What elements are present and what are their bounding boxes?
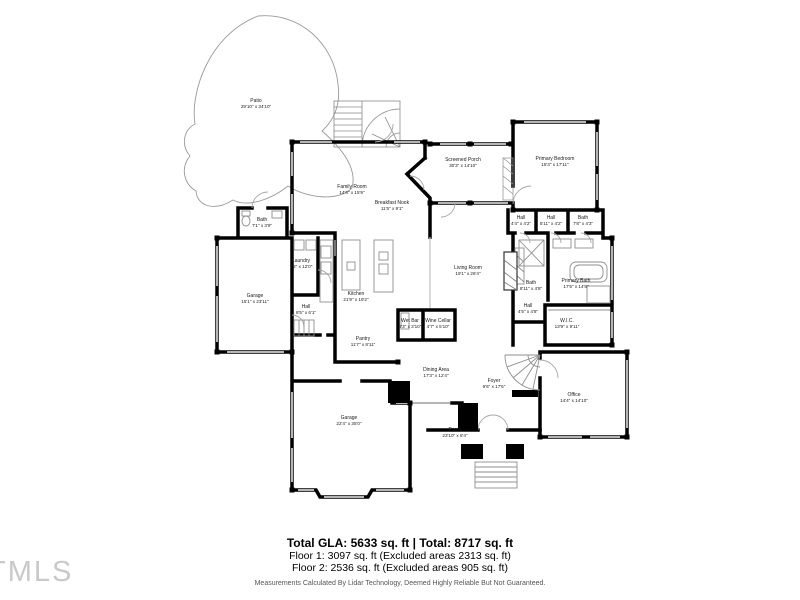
room-label-hall-d: Hall 4'5" x 4'8" [518, 303, 538, 315]
walls [217, 122, 627, 497]
dryer-icon [306, 240, 316, 250]
room-dims: 19'1" x 26'4" [454, 271, 482, 277]
room-label-hall-a: Hall 4'4" x 4'2" [511, 215, 531, 227]
room-dims: 17'3" x 12'4" [423, 373, 449, 379]
room-dims: 4'4" x 4'2" [511, 221, 531, 227]
sink-icon [272, 211, 282, 218]
room-dims: 23'10" x 8'4" [442, 433, 467, 439]
room-label-bath-a: Bath 7'8" x 4'3" [573, 215, 593, 227]
room-label-living-room: Living Room 19'1" x 26'4" [454, 265, 482, 277]
room-dims: 29'10" x 34'10" [241, 104, 271, 110]
room-dims: 9'6" x 17'6" [483, 384, 506, 390]
disclaimer-line: Measurements Calculated By Lidar Technol… [0, 580, 800, 587]
room-dims: 15'3" x 17'11" [536, 162, 575, 168]
room-label-office: Office 14'4" x 14'10" [560, 392, 588, 404]
toilet-icon [242, 216, 250, 226]
porch-steps [475, 462, 517, 488]
room-label-bath-c: Bath 8'11" x 4'8" [520, 280, 542, 292]
room-dims: 8'5" x 6'1" [296, 310, 316, 316]
room-label-wic: W.I.C. 13'9" x 9'11" [555, 318, 580, 330]
room-label-screened-porch: Screened Porch 30'3" x 14'10" [445, 157, 481, 169]
tmls-watermark: TMLS [0, 556, 73, 589]
staircase-top [334, 101, 400, 147]
footer-summary: Total GLA: 5633 sq. ft | Total: 8717 sq.… [0, 536, 800, 587]
room-dims: 8'11" x 4'8" [520, 286, 542, 292]
floor1-line: Floor 1: 3097 sq. ft (Excluded areas 231… [0, 551, 800, 563]
kitchen-island-2 [374, 240, 393, 292]
room-label-breakfast-nook: Breakfast Nook 11'5" x 9'1" [375, 200, 409, 212]
kitchen-island-1 [342, 240, 360, 290]
room-dims: 30'3" x 14'10" [445, 163, 481, 169]
room-dims: 14'4" x 14'10" [560, 398, 588, 404]
room-label-primary-bedroom: Primary Bedroom 15'3" x 17'11" [536, 156, 575, 168]
room-dims: 11'5" x 9'1" [375, 206, 409, 212]
room-label-hall-b: Hall 5'11" x 4'2" [540, 215, 562, 227]
room-label-garage-1: Garage 15'1" x 23'11" [241, 293, 268, 305]
room-label-wet-bar: Wet Bar 8'3" x 3'10" [399, 318, 422, 330]
floor-plan-page: Patio 29'10" x 34'10" Family Room 14'6" … [0, 0, 800, 600]
room-label-primary-bath: Primary Bath 17'5" x 14'8" [562, 278, 591, 290]
room-dims: 8'3" x 3'10" [399, 324, 422, 330]
room-label-patio: Patio 29'10" x 34'10" [241, 98, 271, 110]
room-dims: 22'4" x 35'0" [336, 421, 361, 427]
room-label-bath-b: Bath 7'1" x 3'9" [252, 217, 272, 229]
room-dims: 17'5" x 14'8" [562, 284, 591, 290]
room-label-garage-2: Garage 22'4" x 35'0" [336, 415, 361, 427]
fixtures [242, 211, 610, 488]
floor2-line: Floor 2: 2536 sq. ft (Excluded areas 905… [0, 563, 800, 575]
floor-plan-drawing [0, 0, 800, 600]
room-dims: 7'1" x 3'9" [252, 223, 272, 229]
room-label-foyer: Foyer 9'6" x 17'6" [483, 378, 506, 390]
washer-icon [294, 240, 304, 250]
room-dims: 21'9" x 19'2" [343, 297, 368, 303]
room-label-pantry: Pantry 11'7" x 8'11" [351, 336, 376, 348]
room-dims: 7'2" x 12'0" [290, 264, 313, 270]
room-dims: 13'9" x 9'11" [555, 324, 580, 330]
room-label-laundry: Laundry 7'2" x 12'0" [290, 258, 313, 270]
room-label-porch: Porch 23'10" x 8'4" [442, 427, 467, 439]
room-dims: 14'6" x 15'9" [337, 190, 366, 196]
room-label-family-room: Family Room 14'6" x 15'9" [337, 184, 366, 196]
room-dims: 7'8" x 4'3" [573, 221, 593, 227]
room-label-wine-cellar: Wine Cellar 4'7" x 5'10" [425, 318, 451, 330]
room-label-kitchen: Kitchen 21'9" x 19'2" [343, 291, 368, 303]
room-label-hall-c: Hall 8'5" x 6'1" [296, 304, 316, 316]
room-dims: 11'7" x 8'11" [351, 342, 376, 348]
room-dims: 15'1" x 23'11" [241, 299, 268, 305]
room-label-dining-area: Dining Area 17'3" x 12'4" [423, 367, 449, 379]
fireplace [504, 252, 517, 290]
vanity-icon [553, 239, 571, 248]
patio-outline [184, 16, 353, 207]
room-dims: 4'5" x 4'8" [518, 309, 538, 315]
room-dims: 4'7" x 5'10" [425, 324, 451, 330]
room-dims: 5'11" x 4'2" [540, 221, 562, 227]
total-gla-line: Total GLA: 5633 sq. ft | Total: 8717 sq.… [0, 536, 800, 550]
curved-staircase [505, 355, 540, 390]
